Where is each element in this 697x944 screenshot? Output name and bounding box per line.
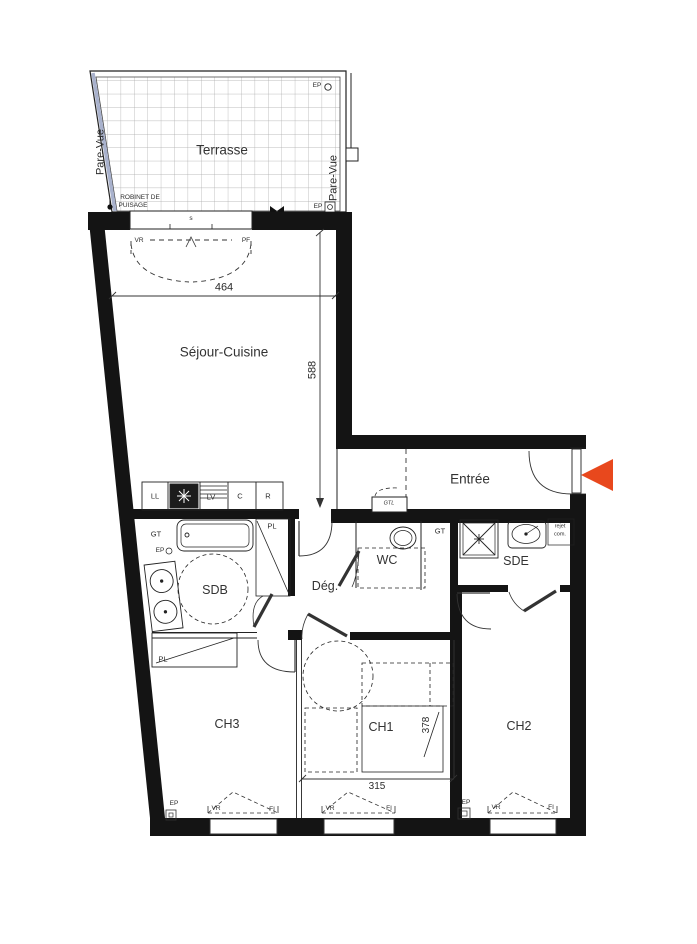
vent-label: com. xyxy=(554,532,566,538)
bedroom-area xyxy=(152,633,453,819)
bathroom-label: SDB xyxy=(202,584,228,597)
entrance-arrow-icon xyxy=(581,459,613,491)
wall-hall-ch1 xyxy=(350,632,462,640)
ep-label: EP xyxy=(313,83,322,90)
clearance-circle xyxy=(303,641,373,711)
ep-label: EP xyxy=(462,800,471,807)
entrance-door-leaf xyxy=(572,449,581,493)
window-ch2 xyxy=(488,792,557,834)
dimension-arrow xyxy=(316,498,324,508)
privacy-screen-left-label: Pare-Vue xyxy=(96,129,107,175)
dimension-width-ch1: 315 xyxy=(369,782,386,792)
door-leaf-ch1 xyxy=(308,614,347,636)
window-fi-label: FI xyxy=(386,806,392,813)
gt-label: GT xyxy=(151,530,161,538)
window-ch1 xyxy=(322,792,395,834)
bedroom3-label: CH3 xyxy=(214,718,239,731)
wall-mid xyxy=(133,509,299,519)
dimension-depth-living: 588 xyxy=(308,361,319,379)
gt-label: GT xyxy=(435,527,445,535)
hall-label: Dég. xyxy=(312,580,338,593)
fridge-label: R xyxy=(265,492,270,500)
wall-sdb xyxy=(288,519,295,596)
wall-sde-bottom xyxy=(560,585,574,592)
entrance-door-arc xyxy=(529,451,572,494)
gtl-label: GTL xyxy=(384,501,395,507)
doors xyxy=(253,521,556,672)
closet-label: PL xyxy=(267,522,276,530)
terrace-label: Terrasse xyxy=(196,143,248,157)
dishwasher-label: LV xyxy=(207,493,216,501)
washer-label: LL xyxy=(151,492,159,500)
door-leaf-sde xyxy=(524,591,556,611)
bathroom-fixtures xyxy=(144,519,290,632)
opening-vr-label: VR xyxy=(134,238,143,245)
wall-ch2-left xyxy=(450,585,462,818)
double-washbasin xyxy=(144,561,183,631)
wall-right xyxy=(570,435,586,448)
tap-label: PUISAGE xyxy=(119,203,148,210)
dimension-depth-ch1: 378 xyxy=(422,717,432,734)
wall-living-right xyxy=(336,213,352,449)
ep-label: EP xyxy=(170,801,179,808)
door-leaf-sdb xyxy=(254,594,272,627)
wall-top xyxy=(88,212,130,230)
dimension-width-living: 464 xyxy=(215,283,233,294)
window-ch3 xyxy=(208,792,278,834)
walls xyxy=(88,212,586,836)
bedroom1-label: CH1 xyxy=(368,721,393,734)
window-vr-label: VR xyxy=(211,806,220,813)
window-vr-label: VR xyxy=(325,806,334,813)
bed-head xyxy=(362,663,453,706)
ep-label: EP xyxy=(314,204,323,211)
vent-label: rejet xyxy=(555,524,566,530)
ep-label: EP xyxy=(156,548,165,555)
wall-hall-sde xyxy=(450,513,458,585)
bedroom2-label: CH2 xyxy=(506,720,531,733)
cooker-label: C xyxy=(237,492,242,500)
windows xyxy=(166,792,557,834)
window-fi-label: FI xyxy=(269,807,275,814)
wc-label: WC xyxy=(377,554,398,567)
shower-room-label: SDE xyxy=(503,555,529,568)
window-vr-label: VR xyxy=(491,805,500,812)
opening-pf-label: PF xyxy=(242,238,250,245)
tap-label: ROBINET DE xyxy=(120,195,160,202)
wall-sdb xyxy=(288,630,302,640)
living-room-label: Séjour-Cuisine xyxy=(180,345,269,359)
wall-entrance-top xyxy=(336,435,586,449)
entrance-label: Entrée xyxy=(450,472,490,486)
closet-label: PL xyxy=(158,655,167,663)
privacy-screen-right-label: Pare-Vue xyxy=(329,155,340,201)
bathtub xyxy=(177,520,253,551)
floorplan: Terrasse Pare-Vue Pare-Vue EP ROBINET DE… xyxy=(0,0,697,944)
sill-label: s xyxy=(189,216,192,223)
wall-sde-bottom xyxy=(458,585,508,592)
side-table xyxy=(305,708,357,772)
window-fi-label: FI xyxy=(548,805,554,812)
rainwater-pipe-icon xyxy=(166,548,172,554)
